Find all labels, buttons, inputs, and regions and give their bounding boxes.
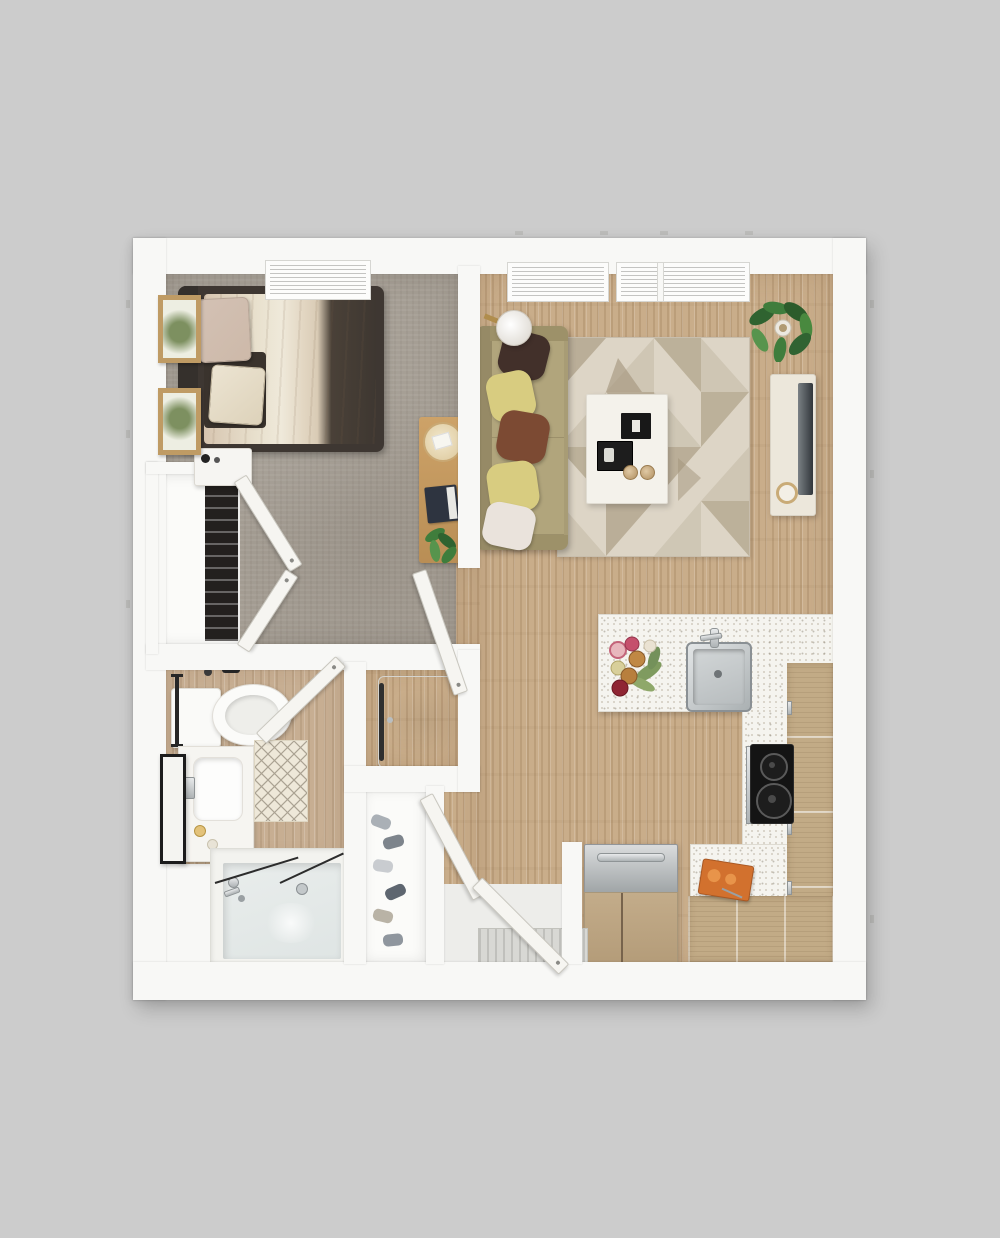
refrigerator [584,844,676,962]
knife [722,888,743,899]
cabinet-handle [787,881,792,895]
wall-exterior-bottom [133,962,866,1000]
bath-mat [254,740,308,822]
floor-lamp-shade [496,310,532,346]
table-book [621,413,651,439]
table-cup-2 [640,465,655,480]
burner-center [769,762,775,768]
cooktop [750,744,794,824]
living-window-1 [507,262,609,302]
tub-drain [296,883,308,895]
tray-cup [604,448,614,462]
dimension-tick [126,430,130,438]
wall-frame-2 [158,388,201,455]
refrigerator-handle [597,853,665,862]
burner-center [768,795,776,803]
tray-papers [431,432,452,450]
washer-handle [387,717,393,723]
cabinet-handle [787,701,792,715]
bed-pillow-cream [208,364,266,426]
tub-highlight [263,903,319,943]
dimension-tick [126,600,130,608]
dimension-tick [660,231,668,235]
dimension-tick [870,915,874,923]
board-food [707,868,722,883]
bench-tray [423,422,463,462]
bed [178,286,384,452]
bathtub [210,848,348,966]
refrigerator-top [584,844,678,894]
bathroom-mirror [160,754,186,864]
dimension-tick [515,231,523,235]
dimension-tick [870,470,874,478]
tub-handle [238,895,245,902]
towel-bar [175,676,179,746]
nightstand-cup [214,457,220,463]
refrigerator-seam [621,893,623,963]
bathtub-interior [223,863,341,959]
wall-frame-1 [158,295,201,363]
potted-plant [746,296,818,362]
washer-dryer [378,676,462,768]
dimension-tick [745,231,753,235]
floor-plan-screenshot [0,0,1000,1238]
dimension-tick [870,300,874,308]
closet-hanging-clothes [205,479,238,641]
window-blinds [621,267,745,297]
base-cabinets [688,896,834,962]
bench-books [424,484,460,523]
wall-bedroom-closet-left [146,462,158,654]
vanity-sink [193,757,243,821]
book-label [632,420,640,432]
window-blinds [512,267,604,297]
board-food [724,873,737,886]
flower-arrangement [604,632,676,708]
tv-screen [798,383,813,495]
wall-bedroom-living [458,266,480,568]
window-divider [657,263,664,301]
table-cup [623,465,638,480]
book-pages [446,487,457,520]
wall-bathroom-right [344,662,366,964]
kitchen-sink [686,642,752,712]
burner-large [756,783,792,819]
bedroom-window [265,260,371,300]
bedroom-bench [419,417,463,563]
bath-mat-pattern [255,741,307,821]
console-decor-bowl [776,482,798,504]
living-window-2 [616,262,750,302]
wall-bedroom-bathroom [146,644,480,670]
vanity-flowers [194,825,206,837]
dimension-tick [126,300,130,308]
refrigerator-front [584,892,678,964]
bedroom-doorway-floor [456,560,480,652]
nightstand-bottle [201,454,210,463]
burner-small [760,753,788,781]
washer-door-seam [379,683,384,761]
bed-pillow-blush [196,297,251,364]
sink-drain [714,670,722,678]
bathroom-vanity [178,746,254,862]
wall-kitchen-entry-stub [562,842,582,964]
tv-console [770,374,816,516]
window-blinds [270,265,366,295]
towel-bar-end [171,674,183,677]
wall-exterior-right [833,238,866,1000]
shoe [382,933,403,947]
dimension-tick [600,231,608,235]
floor-plan [133,238,866,1000]
throw-pillow-rust [494,408,552,466]
wall-exterior-top [133,238,866,274]
coffee-table [586,394,668,504]
